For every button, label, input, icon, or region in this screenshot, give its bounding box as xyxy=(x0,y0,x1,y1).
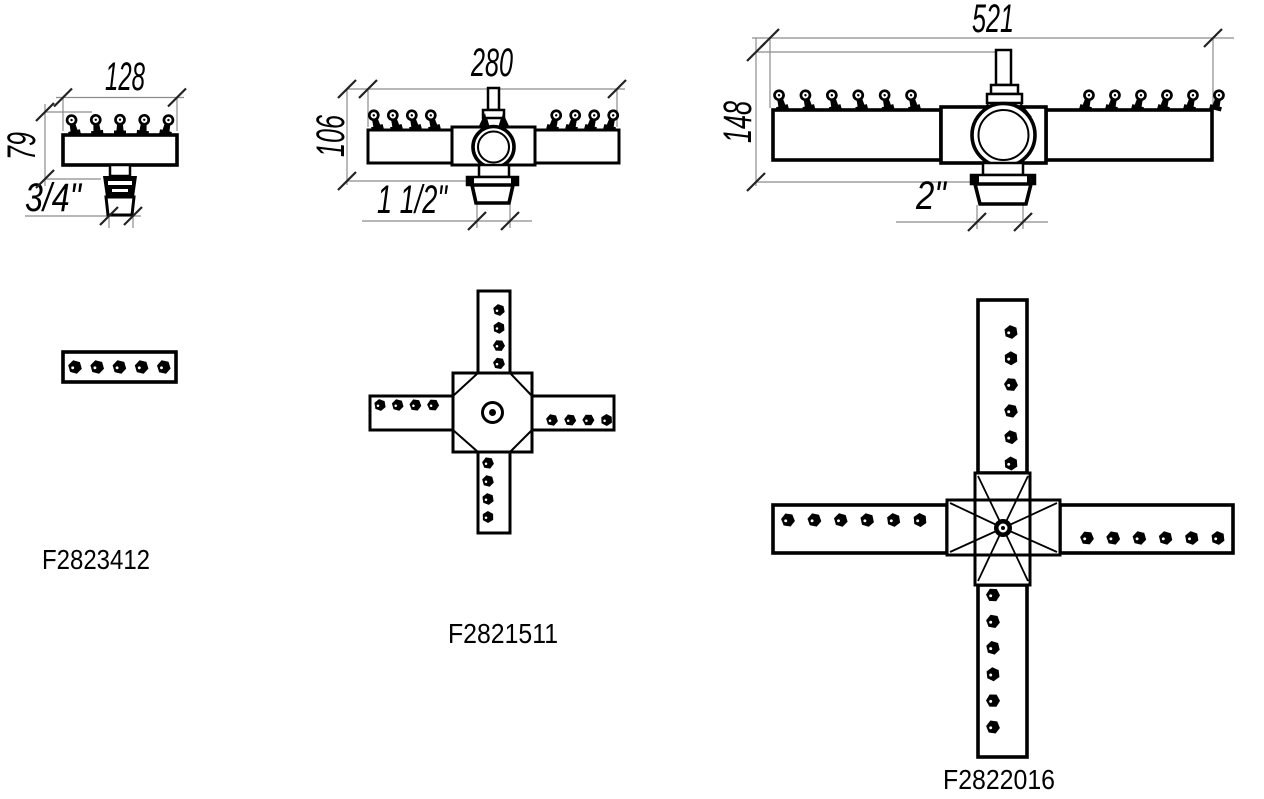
dimension-height-small: 79 xyxy=(0,132,44,160)
plan-arm-right xyxy=(1060,505,1233,553)
ball-swivel xyxy=(972,104,1035,167)
riser-pipe xyxy=(488,88,499,110)
outlet-connector xyxy=(472,185,513,203)
ball-swivel xyxy=(473,127,514,168)
thread-fitting xyxy=(103,176,137,197)
dimension-thread-medium: 1 1/2" xyxy=(377,178,448,222)
nozzle-icon xyxy=(114,115,126,135)
left-arm xyxy=(368,130,452,163)
right-arm xyxy=(535,130,619,163)
nozzle-icon xyxy=(386,109,403,131)
right-arm xyxy=(1046,110,1212,160)
nozzle-icon xyxy=(424,109,441,131)
nozzle-row-right xyxy=(546,109,620,131)
drawing-f2821511: 280 106 1 1/2" xyxy=(309,41,625,649)
dimension-width-small: 128 xyxy=(105,55,145,99)
nozzle-icon xyxy=(159,114,175,136)
dimension-width-large: 521 xyxy=(972,0,1014,41)
outlet-neck xyxy=(110,165,130,176)
plan-arm-top xyxy=(478,291,510,373)
nozzle-icon xyxy=(405,109,422,131)
riser-collar xyxy=(483,110,504,118)
nozzle-icon xyxy=(584,109,601,131)
outlet-connector xyxy=(106,197,134,215)
outlet-neck xyxy=(983,163,1023,175)
plan-view-small xyxy=(63,352,176,382)
plan-arm-bottom xyxy=(478,452,510,533)
nozzle-icon xyxy=(367,109,384,131)
left-arm xyxy=(773,110,941,160)
dimension-height-medium: 106 xyxy=(309,115,353,157)
nozzle-icon xyxy=(89,115,103,136)
plan-arm-top xyxy=(978,300,1027,473)
plan-arm-bottom xyxy=(978,585,1027,757)
part-number-label: F2822016 xyxy=(943,764,1055,795)
nozzle-icon xyxy=(603,109,620,131)
part-number-label: F2823412 xyxy=(42,544,150,575)
nozzle-icon xyxy=(137,115,151,136)
plan-arm-left xyxy=(773,505,947,553)
nozzle-row xyxy=(65,114,176,136)
dimension-height-large: 148 xyxy=(716,101,760,143)
outlet-connector xyxy=(975,184,1031,204)
drawing-f2823412: 128 79 3/4" F2823412 xyxy=(0,55,184,575)
drawing-f2822016: 521 148 2" xyxy=(716,0,1234,795)
plan-view-medium xyxy=(370,291,614,533)
plan-view-large xyxy=(773,300,1233,757)
dimension-width-medium: 280 xyxy=(470,41,513,85)
drawing-sheet: 128 79 3/4" F2823412 xyxy=(0,0,1264,799)
dimension-thread-large: 2" xyxy=(915,174,947,218)
nozzle-icon xyxy=(65,114,81,136)
manifold-bar xyxy=(63,135,177,165)
nozzle-icon xyxy=(565,109,582,131)
nozzle-row-left xyxy=(367,109,441,131)
front-view-large xyxy=(772,50,1226,204)
outlet-neck xyxy=(479,165,509,177)
technical-drawing-canvas: 128 79 3/4" F2823412 xyxy=(0,0,1264,799)
riser-collar xyxy=(991,85,1018,94)
riser-pipe xyxy=(996,50,1011,85)
nozzle-icon xyxy=(546,109,563,131)
dimension-thread-small: 3/4" xyxy=(25,176,82,220)
plan-arm-right xyxy=(532,396,614,430)
part-number-label: F2821511 xyxy=(448,618,558,649)
